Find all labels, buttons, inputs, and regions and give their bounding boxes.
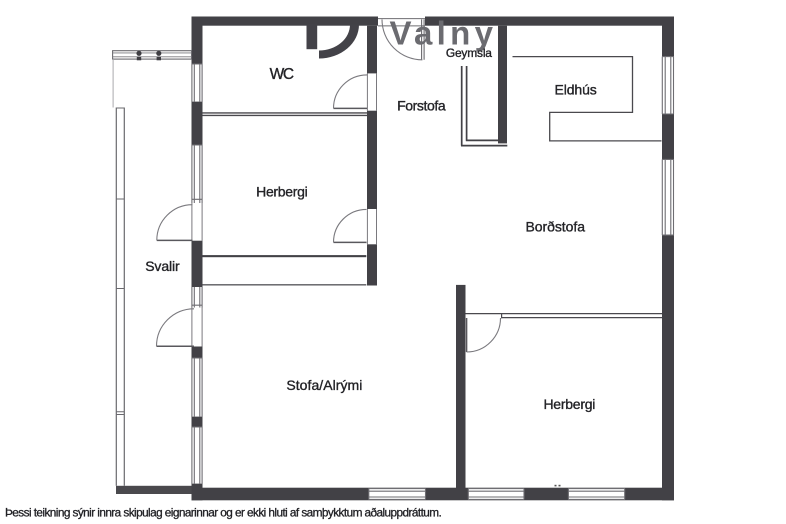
svg-text:WC: WC (270, 66, 294, 83)
svg-text:Forstofa: Forstofa (397, 98, 446, 114)
svg-text:Þessi teikning sýnir innra ski: Þessi teikning sýnir innra skipulag eign… (5, 506, 442, 520)
svg-text:Eldhús: Eldhús (554, 82, 596, 98)
svg-text:Herbergi: Herbergi (543, 396, 595, 412)
svg-text:Geymsla: Geymsla (446, 46, 492, 60)
svg-text:Herbergi: Herbergi (256, 184, 307, 200)
svg-text:Borðstofa: Borðstofa (525, 219, 585, 235)
svg-text:Svalir: Svalir (145, 258, 180, 274)
svg-text:Stofa/Alrými: Stofa/Alrými (286, 377, 362, 393)
